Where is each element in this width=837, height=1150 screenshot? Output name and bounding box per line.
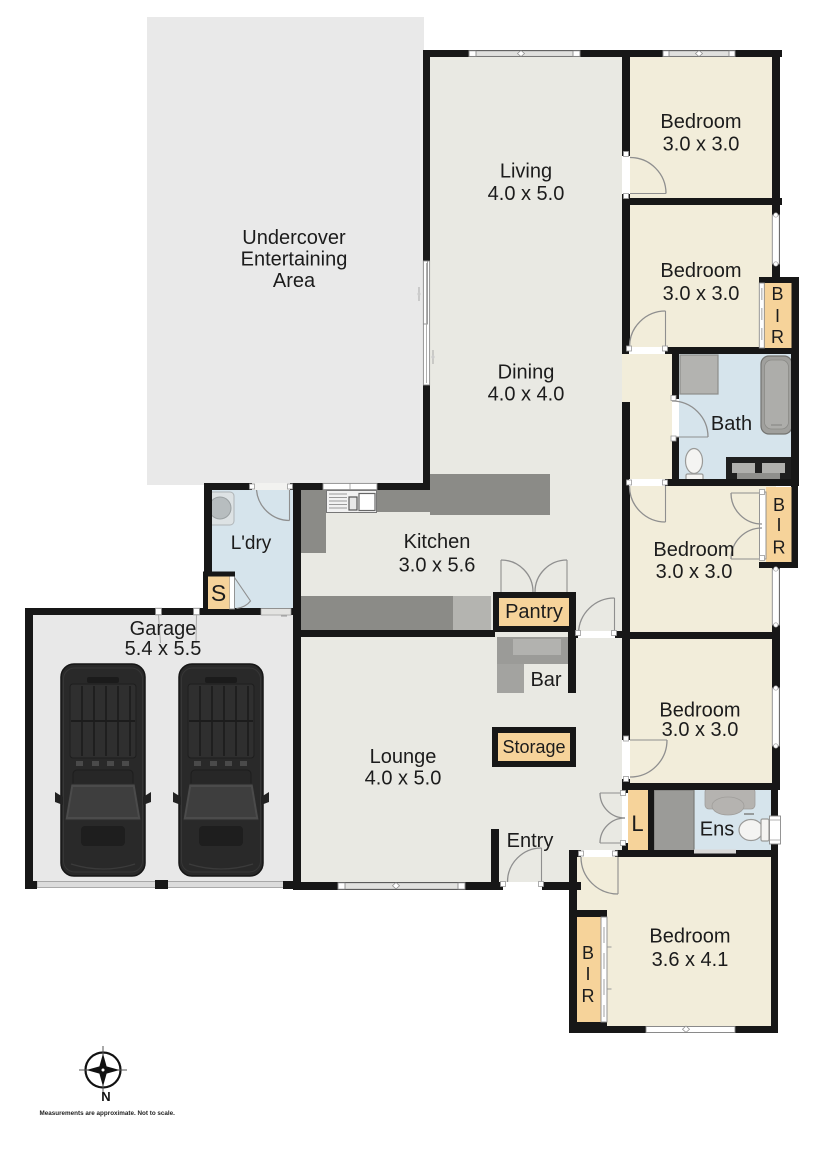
svg-text:3.0 x 3.0: 3.0 x 3.0: [663, 283, 740, 305]
svg-text:Entertaining: Entertaining: [241, 249, 348, 271]
svg-text:4.0 x 4.0: 4.0 x 4.0: [488, 384, 565, 406]
svg-text:B: B: [582, 943, 594, 963]
svg-text:3.0 x 5.6: 3.0 x 5.6: [399, 555, 476, 577]
svg-text:4.0 x 5.0: 4.0 x 5.0: [488, 183, 565, 205]
svg-text:Kitchen: Kitchen: [404, 531, 471, 553]
svg-text:N: N: [101, 1089, 110, 1104]
svg-text:B: B: [773, 495, 785, 515]
svg-text:3.0 x 3.0: 3.0 x 3.0: [662, 719, 739, 741]
svg-text:Garage: Garage: [130, 618, 197, 640]
svg-text:Pantry: Pantry: [505, 601, 563, 623]
svg-text:Bedroom: Bedroom: [653, 539, 734, 561]
svg-text:4.0 x 5.0: 4.0 x 5.0: [365, 768, 442, 790]
svg-text:Bedroom: Bedroom: [649, 926, 730, 948]
svg-text:Bath: Bath: [711, 413, 752, 435]
svg-text:Dining: Dining: [498, 362, 555, 384]
svg-text:5.4 x 5.5: 5.4 x 5.5: [125, 638, 202, 660]
svg-text:R: R: [773, 538, 786, 558]
svg-text:I: I: [775, 306, 780, 326]
svg-text:Undercover: Undercover: [242, 227, 346, 249]
svg-text:Bedroom: Bedroom: [660, 111, 741, 133]
svg-text:Bar: Bar: [530, 669, 561, 691]
svg-text:R: R: [771, 327, 784, 347]
svg-text:3.0 x 3.0: 3.0 x 3.0: [656, 561, 733, 583]
svg-text:Storage: Storage: [502, 737, 565, 757]
svg-text:Bedroom: Bedroom: [660, 260, 741, 282]
svg-text:S: S: [211, 580, 226, 606]
svg-text:I: I: [776, 515, 781, 535]
svg-text:Measurements are approximate.: Measurements are approximate. Not to sca…: [40, 1110, 176, 1117]
svg-text:Living: Living: [500, 161, 552, 183]
svg-text:Lounge: Lounge: [370, 746, 437, 768]
svg-text:L: L: [631, 811, 643, 836]
svg-text:R: R: [582, 986, 595, 1006]
svg-text:B: B: [771, 284, 783, 304]
svg-text:Entry: Entry: [507, 830, 554, 852]
svg-text:I: I: [585, 964, 590, 984]
svg-text:3.0 x 3.0: 3.0 x 3.0: [663, 134, 740, 156]
svg-text:L'dry: L'dry: [231, 533, 272, 554]
svg-text:3.6 x 4.1: 3.6 x 4.1: [652, 949, 729, 971]
svg-text:Area: Area: [273, 270, 316, 292]
svg-text:Ens: Ens: [700, 819, 734, 841]
